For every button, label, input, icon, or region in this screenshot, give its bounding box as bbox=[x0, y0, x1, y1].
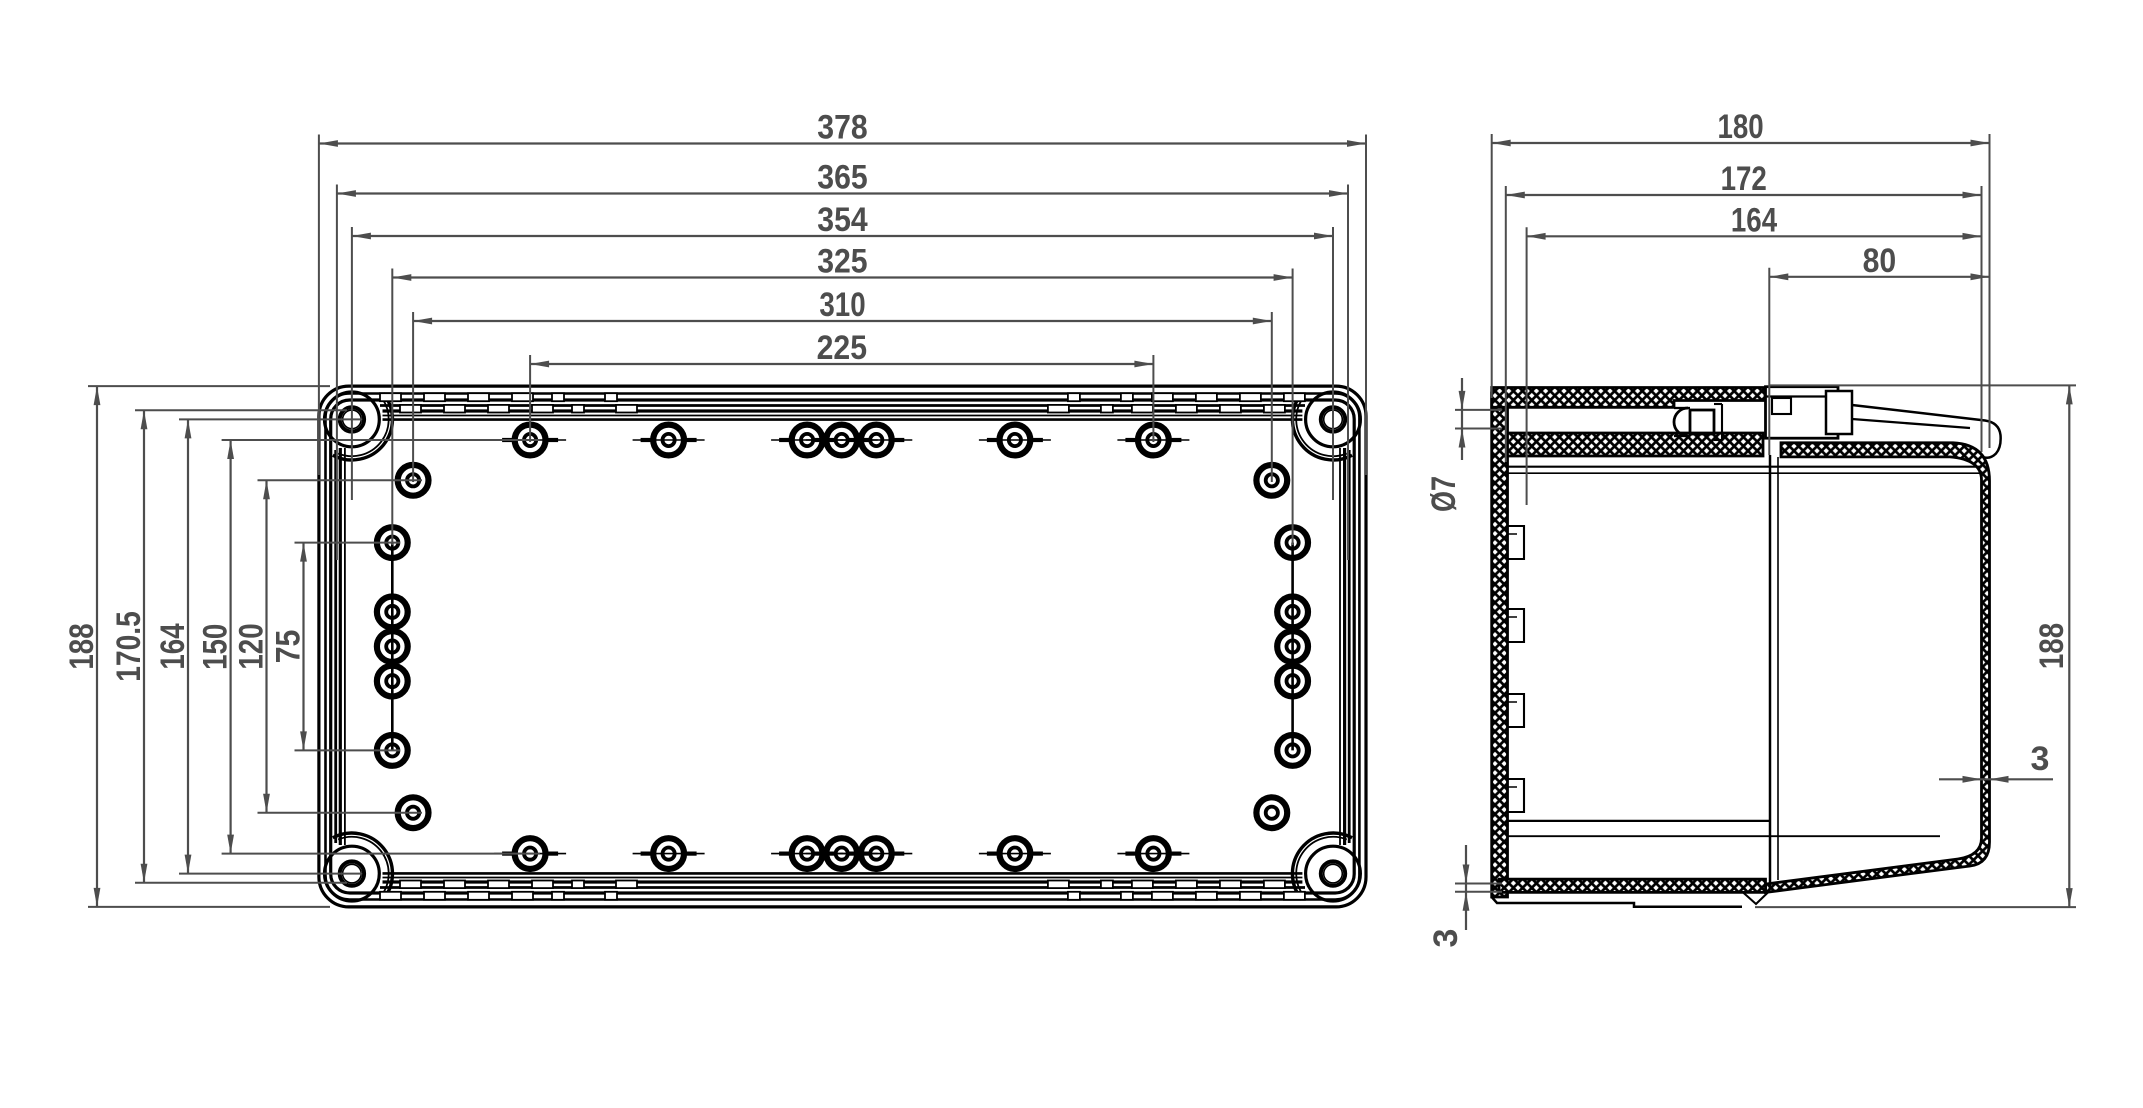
svg-text:3: 3 bbox=[1427, 929, 1465, 948]
svg-text:Ø7: Ø7 bbox=[1425, 476, 1463, 512]
svg-text:3: 3 bbox=[2031, 740, 2050, 778]
svg-text:172: 172 bbox=[1721, 160, 1767, 198]
svg-text:180: 180 bbox=[1718, 108, 1764, 146]
svg-text:164: 164 bbox=[154, 623, 192, 669]
svg-text:225: 225 bbox=[817, 329, 867, 367]
svg-text:325: 325 bbox=[817, 243, 867, 281]
svg-text:354: 354 bbox=[817, 201, 867, 239]
svg-text:170.5: 170.5 bbox=[110, 611, 148, 682]
svg-text:120: 120 bbox=[233, 623, 271, 669]
svg-text:310: 310 bbox=[819, 286, 865, 324]
svg-text:188: 188 bbox=[2033, 623, 2071, 669]
svg-text:164: 164 bbox=[1731, 201, 1777, 239]
svg-text:188: 188 bbox=[63, 623, 101, 669]
svg-text:150: 150 bbox=[197, 624, 235, 670]
svg-text:365: 365 bbox=[817, 159, 867, 197]
svg-text:75: 75 bbox=[270, 630, 308, 664]
svg-text:378: 378 bbox=[817, 109, 867, 147]
svg-text:80: 80 bbox=[1863, 242, 1897, 280]
